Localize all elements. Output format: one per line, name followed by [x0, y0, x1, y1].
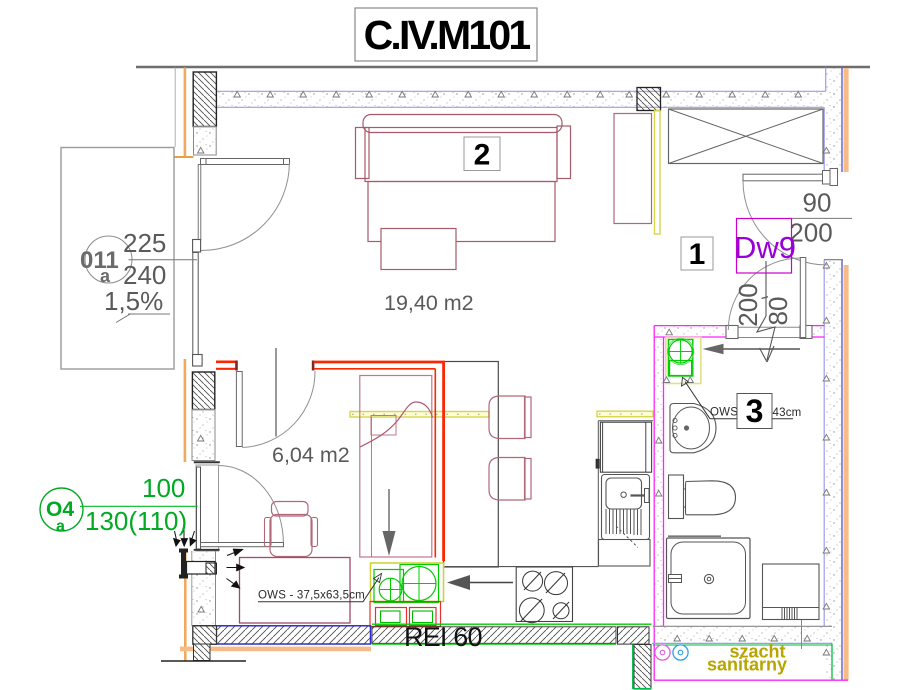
svg-text:1,5%: 1,5%	[104, 286, 163, 316]
svg-text:a: a	[100, 266, 111, 286]
svg-text:OWS - 37,5x63,5cm: OWS - 37,5x63,5cm	[258, 590, 365, 602]
svg-text:225: 225	[123, 228, 166, 258]
svg-text:1: 1	[689, 238, 706, 271]
svg-text:C.IV.M101: C.IV.M101	[364, 12, 531, 58]
svg-text:90: 90	[803, 188, 832, 218]
svg-text:19,40 m2: 19,40 m2	[384, 291, 474, 315]
svg-text:sanitarny: sanitarny	[707, 655, 787, 675]
svg-text:80: 80	[763, 297, 793, 326]
svg-text:200: 200	[733, 283, 763, 326]
svg-text:a: a	[56, 518, 65, 535]
svg-text:3: 3	[746, 393, 764, 429]
svg-text:100: 100	[142, 473, 185, 503]
svg-text:130(110): 130(110)	[85, 506, 187, 536]
svg-text:2: 2	[474, 139, 491, 172]
svg-text:Dw9: Dw9	[734, 230, 796, 265]
svg-text:REI 60: REI 60	[404, 622, 482, 652]
svg-text:43cm: 43cm	[773, 407, 802, 419]
svg-text:6,04 m2: 6,04 m2	[272, 443, 350, 467]
